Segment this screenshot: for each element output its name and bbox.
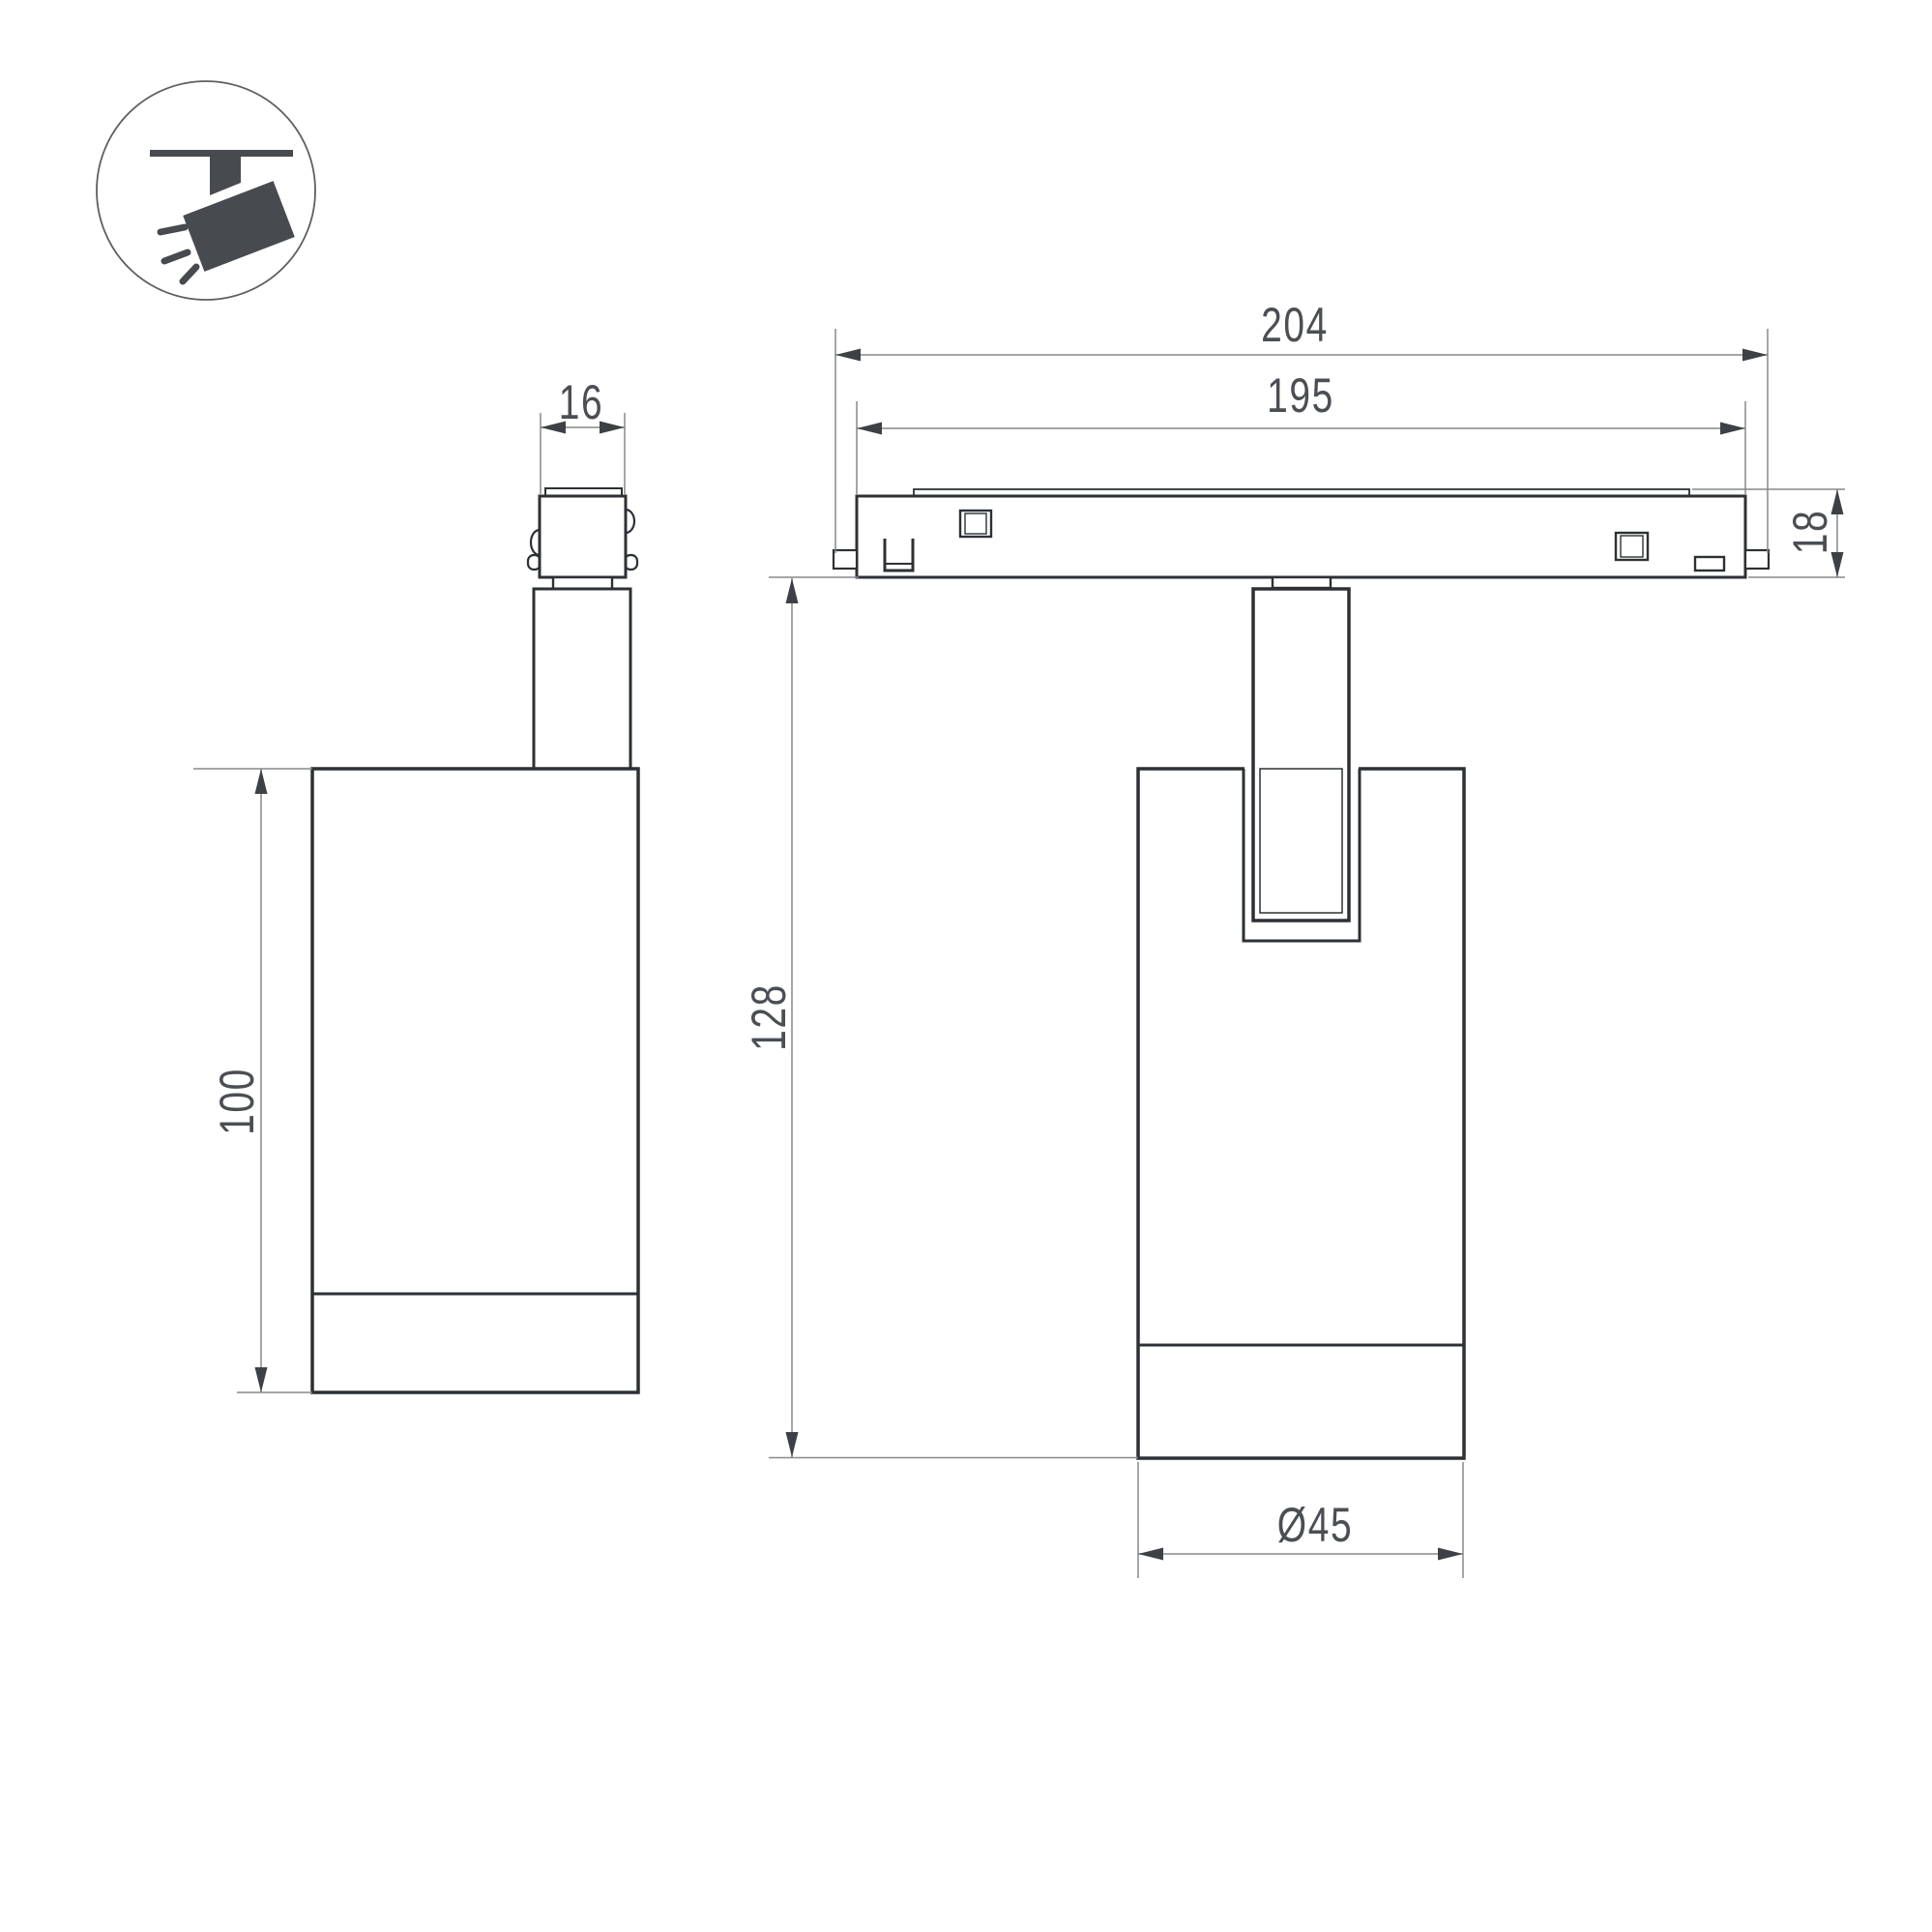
arrowhead-down <box>255 1367 268 1392</box>
lamp-body <box>312 769 638 1392</box>
arrowhead-left <box>835 349 861 362</box>
arrowhead-up <box>786 578 799 603</box>
dim-label-diameter-45: Ø45 <box>1277 1497 1353 1552</box>
adapter-neck <box>553 577 612 589</box>
dim-overall-height: 128 <box>741 577 1138 1458</box>
suspension-stem-front <box>1253 589 1349 921</box>
dim-label-128: 128 <box>741 983 796 1051</box>
front-view <box>834 489 1769 1458</box>
arrowhead-down <box>786 1432 799 1457</box>
track-adapter-box <box>540 496 626 577</box>
arrowhead-right <box>1720 423 1745 435</box>
arrowhead-left <box>857 423 882 435</box>
track-end-tab-right <box>1745 550 1769 569</box>
arrowhead-up <box>255 769 268 794</box>
stem-mount-nub <box>1273 577 1331 588</box>
dim-label-195: 195 <box>1267 367 1334 423</box>
arrowhead-down <box>1831 552 1844 577</box>
dim-body-diameter: Ø45 <box>1138 1462 1463 1578</box>
arrowhead-right <box>1438 1548 1463 1561</box>
drawing-canvas: 16 100 <box>0 0 1932 1932</box>
side-view <box>312 488 638 1392</box>
dimension-drawing: 16 100 <box>0 0 1932 1932</box>
dim-label-16: 16 <box>559 374 603 429</box>
dim-label-18: 18 <box>1782 510 1837 554</box>
dim-label-100: 100 <box>209 1068 264 1135</box>
dim-stem-width: 16 <box>541 374 625 494</box>
track-end-tab-left <box>834 550 857 569</box>
dim-label-204: 204 <box>1261 297 1329 352</box>
track-spotlight-icon <box>97 81 315 300</box>
dim-track-body-width: 195 <box>857 367 1745 494</box>
dim-body-height: 100 <box>193 769 312 1392</box>
suspension-stem <box>534 589 630 769</box>
arrowhead-right <box>1742 349 1768 362</box>
arrowhead-left <box>1138 1548 1163 1561</box>
track-contact-block <box>1695 557 1724 571</box>
